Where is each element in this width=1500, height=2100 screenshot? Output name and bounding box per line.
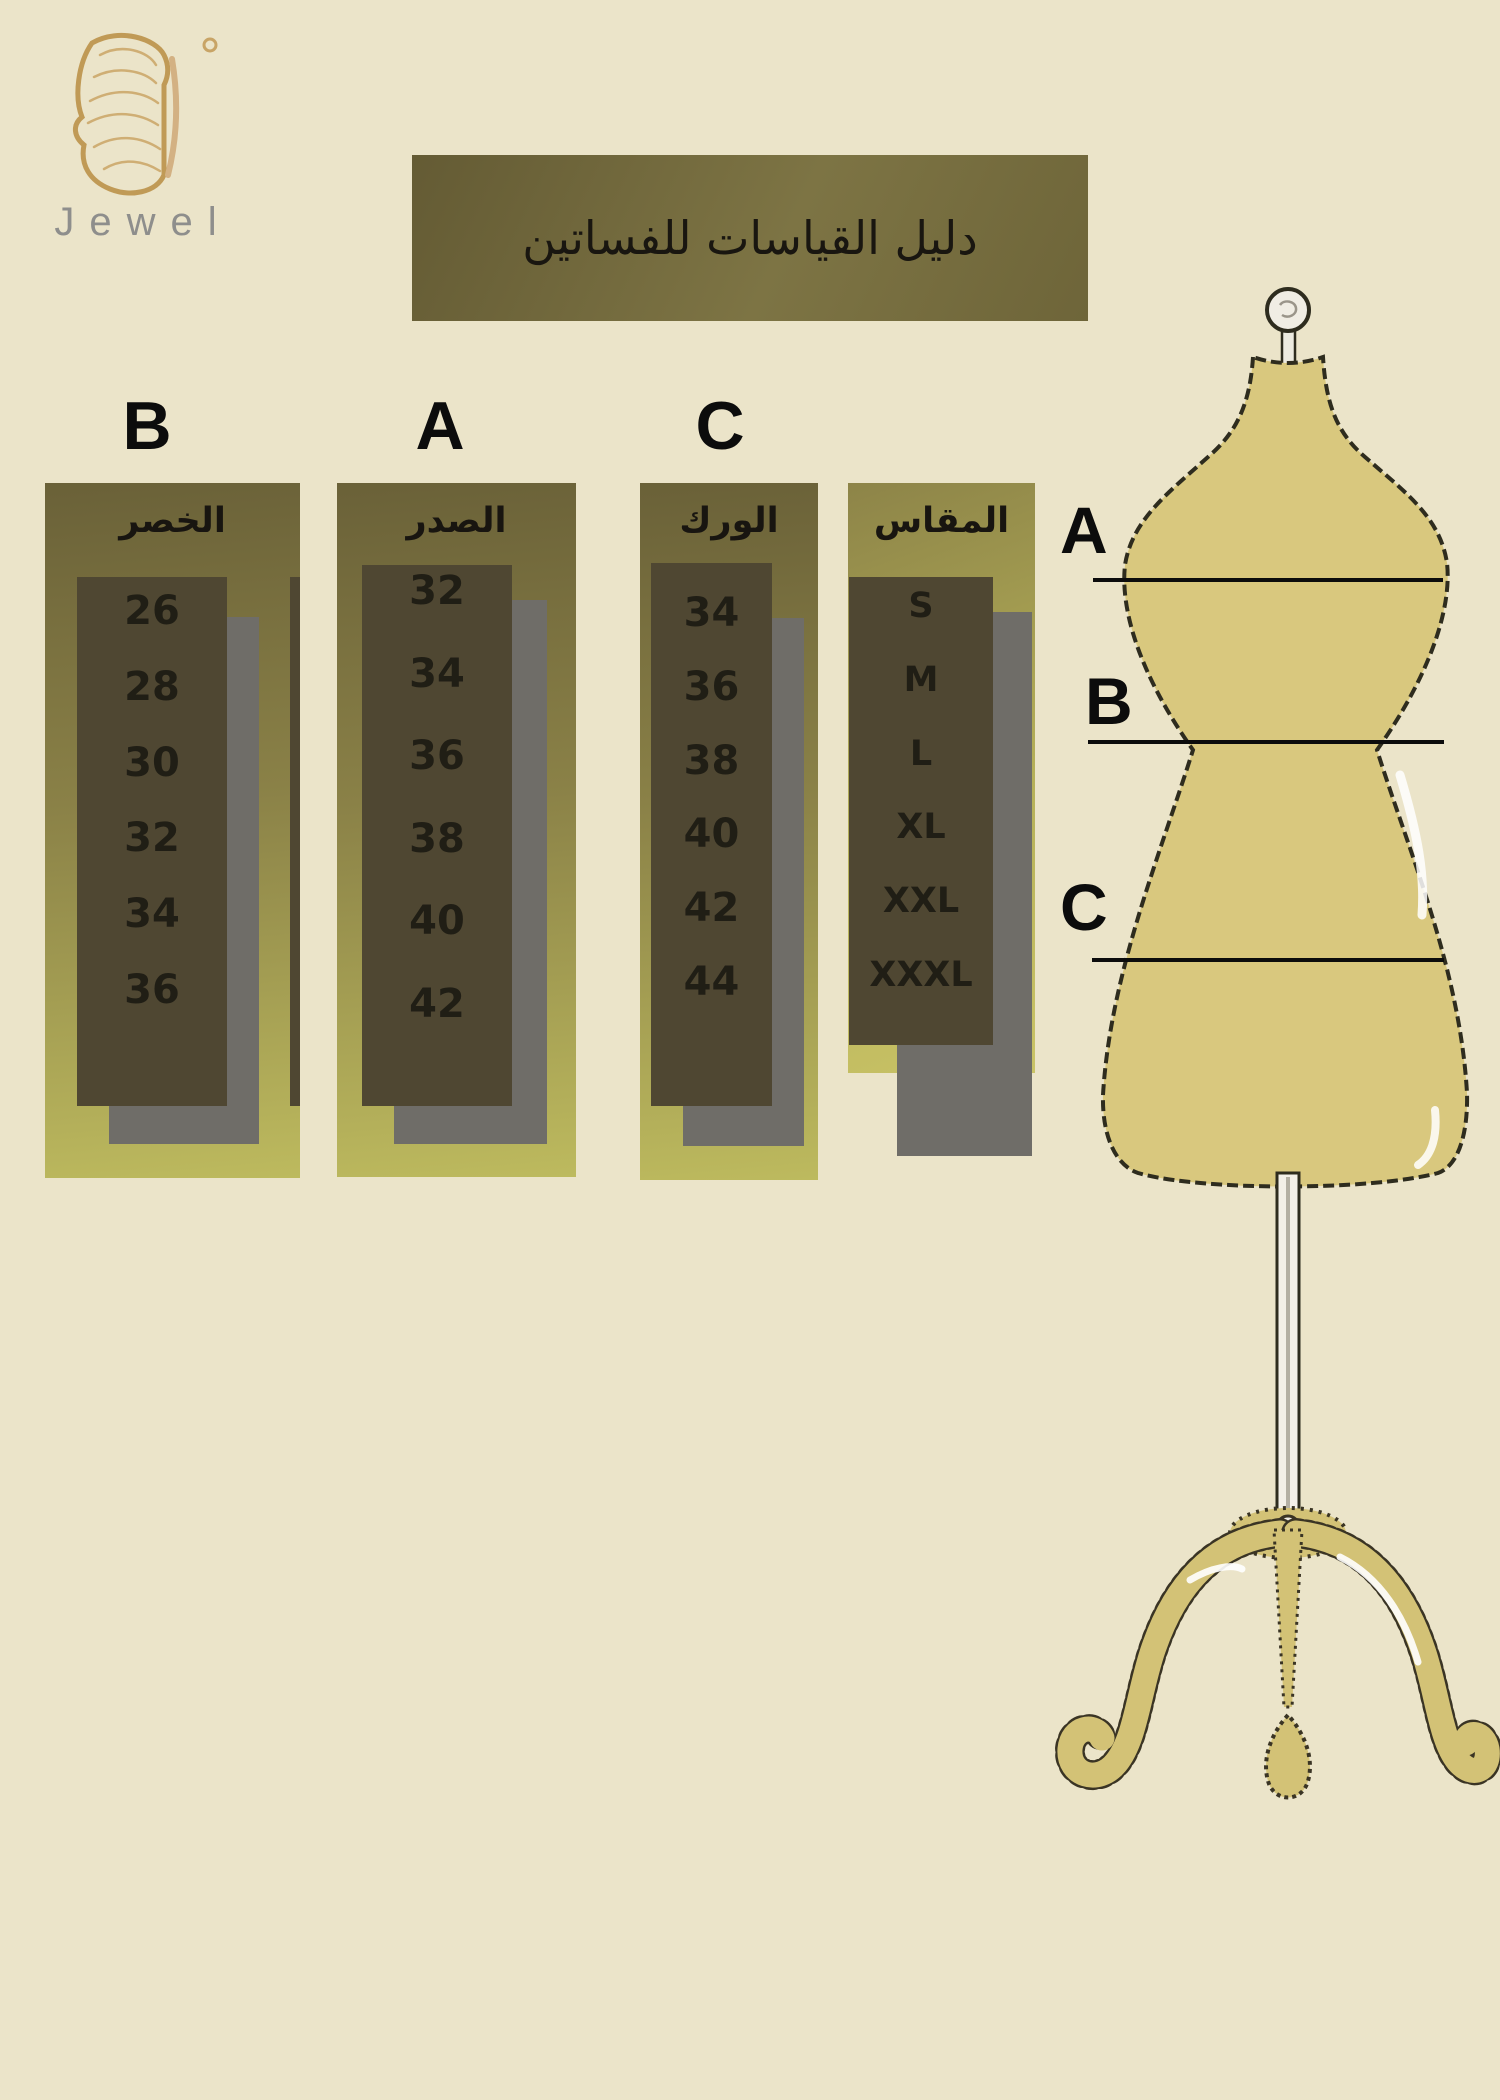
- hip-value: 36: [684, 667, 740, 707]
- column-letter-waist: B: [87, 392, 207, 460]
- tripod-center-foot: [1266, 1715, 1310, 1798]
- hip-values-box: 34 36 38 40 42 44: [651, 563, 772, 1106]
- bust-value: 38: [409, 819, 465, 859]
- hip-value: 44: [684, 962, 740, 1002]
- bust-values-box: 32 34 36 38 40 42: [362, 565, 512, 1106]
- bust-value: 42: [409, 984, 465, 1024]
- waist-value: 26: [124, 591, 180, 631]
- waist-values-box: 26 28 30 32 34 36: [77, 577, 227, 1106]
- hip-value: 34: [684, 593, 740, 633]
- mannequin-torso: [1103, 357, 1467, 1187]
- size-value: XL: [896, 810, 945, 845]
- butterfly-wing-icon: [60, 25, 230, 200]
- jewel-logo: [60, 25, 230, 200]
- size-guide-page: { "brand": { "name": "Jewel", "logo_icon…: [0, 0, 1500, 2100]
- waist-value: 34: [124, 894, 180, 934]
- column-letter-bust: A: [380, 392, 500, 460]
- mannequin-marker-c: C: [1060, 874, 1170, 940]
- size-values-box: S M L XL XXL XXXL: [849, 577, 993, 1045]
- tripod-right-leg: [1296, 1533, 1487, 1770]
- logo-dot: [204, 39, 216, 51]
- size-value: XXL: [883, 884, 959, 919]
- hip-column-header: الورك: [640, 501, 818, 541]
- waist-value: 36: [124, 970, 180, 1010]
- size-value: M: [904, 663, 939, 698]
- tripod-left-leg: [1070, 1533, 1280, 1775]
- waist-measure-line: [1088, 740, 1444, 744]
- waist-edge-strip: [290, 577, 300, 1106]
- title-banner: دليل القياسات للفساتين: [412, 155, 1088, 321]
- size-column-header: المقاس: [848, 501, 1035, 541]
- dress-form-illustration: [1040, 215, 1500, 1855]
- mannequin-marker-a: A: [1060, 497, 1170, 563]
- hip-value: 38: [684, 741, 740, 781]
- bust-value: 32: [409, 571, 465, 611]
- waist-column-header: الخصر: [45, 501, 300, 541]
- bust-measure-line: [1093, 578, 1443, 582]
- size-value: S: [908, 589, 933, 624]
- bust-value: 36: [409, 736, 465, 776]
- hip-value: 42: [684, 888, 740, 928]
- waist-value: 32: [124, 818, 180, 858]
- column-letter-hip: C: [660, 392, 780, 460]
- hip-value: 40: [684, 814, 740, 854]
- size-value: XXXL: [869, 958, 972, 993]
- brand-name: Jewel: [48, 200, 238, 245]
- bust-value: 40: [409, 901, 465, 941]
- bust-value: 34: [409, 654, 465, 694]
- page-title: دليل القياسات للفساتين: [522, 211, 978, 265]
- finial-knob: [1267, 289, 1309, 331]
- waist-value: 28: [124, 667, 180, 707]
- hip-measure-line: [1092, 958, 1444, 962]
- bust-column-header: الصدر: [337, 501, 576, 541]
- size-value: L: [910, 737, 932, 772]
- waist-value: 30: [124, 743, 180, 783]
- mannequin-marker-b: B: [1085, 668, 1195, 734]
- tripod-center-leg: [1274, 1530, 1302, 1707]
- dress-form-svg: [1040, 215, 1500, 1855]
